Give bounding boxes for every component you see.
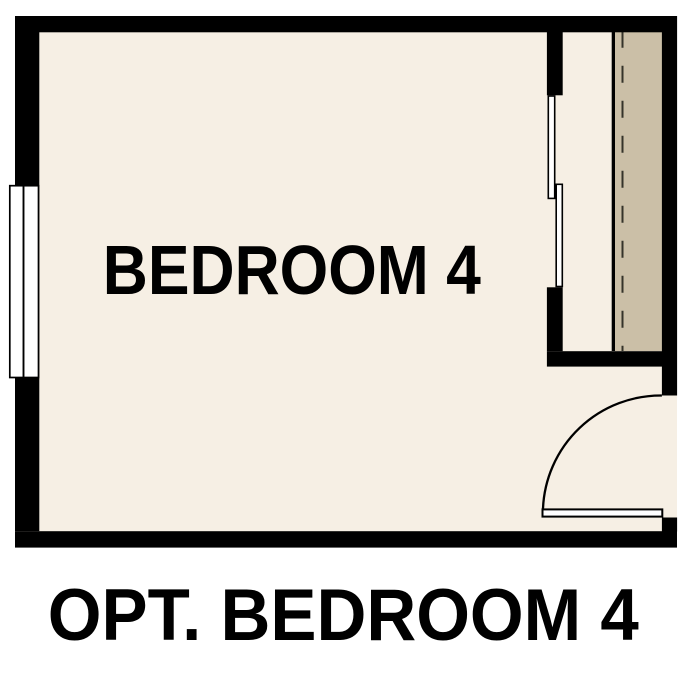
svg-text:OPT. BEDROOM 4: OPT. BEDROOM 4 — [48, 575, 639, 656]
svg-text:BEDROOM 4: BEDROOM 4 — [103, 231, 481, 309]
